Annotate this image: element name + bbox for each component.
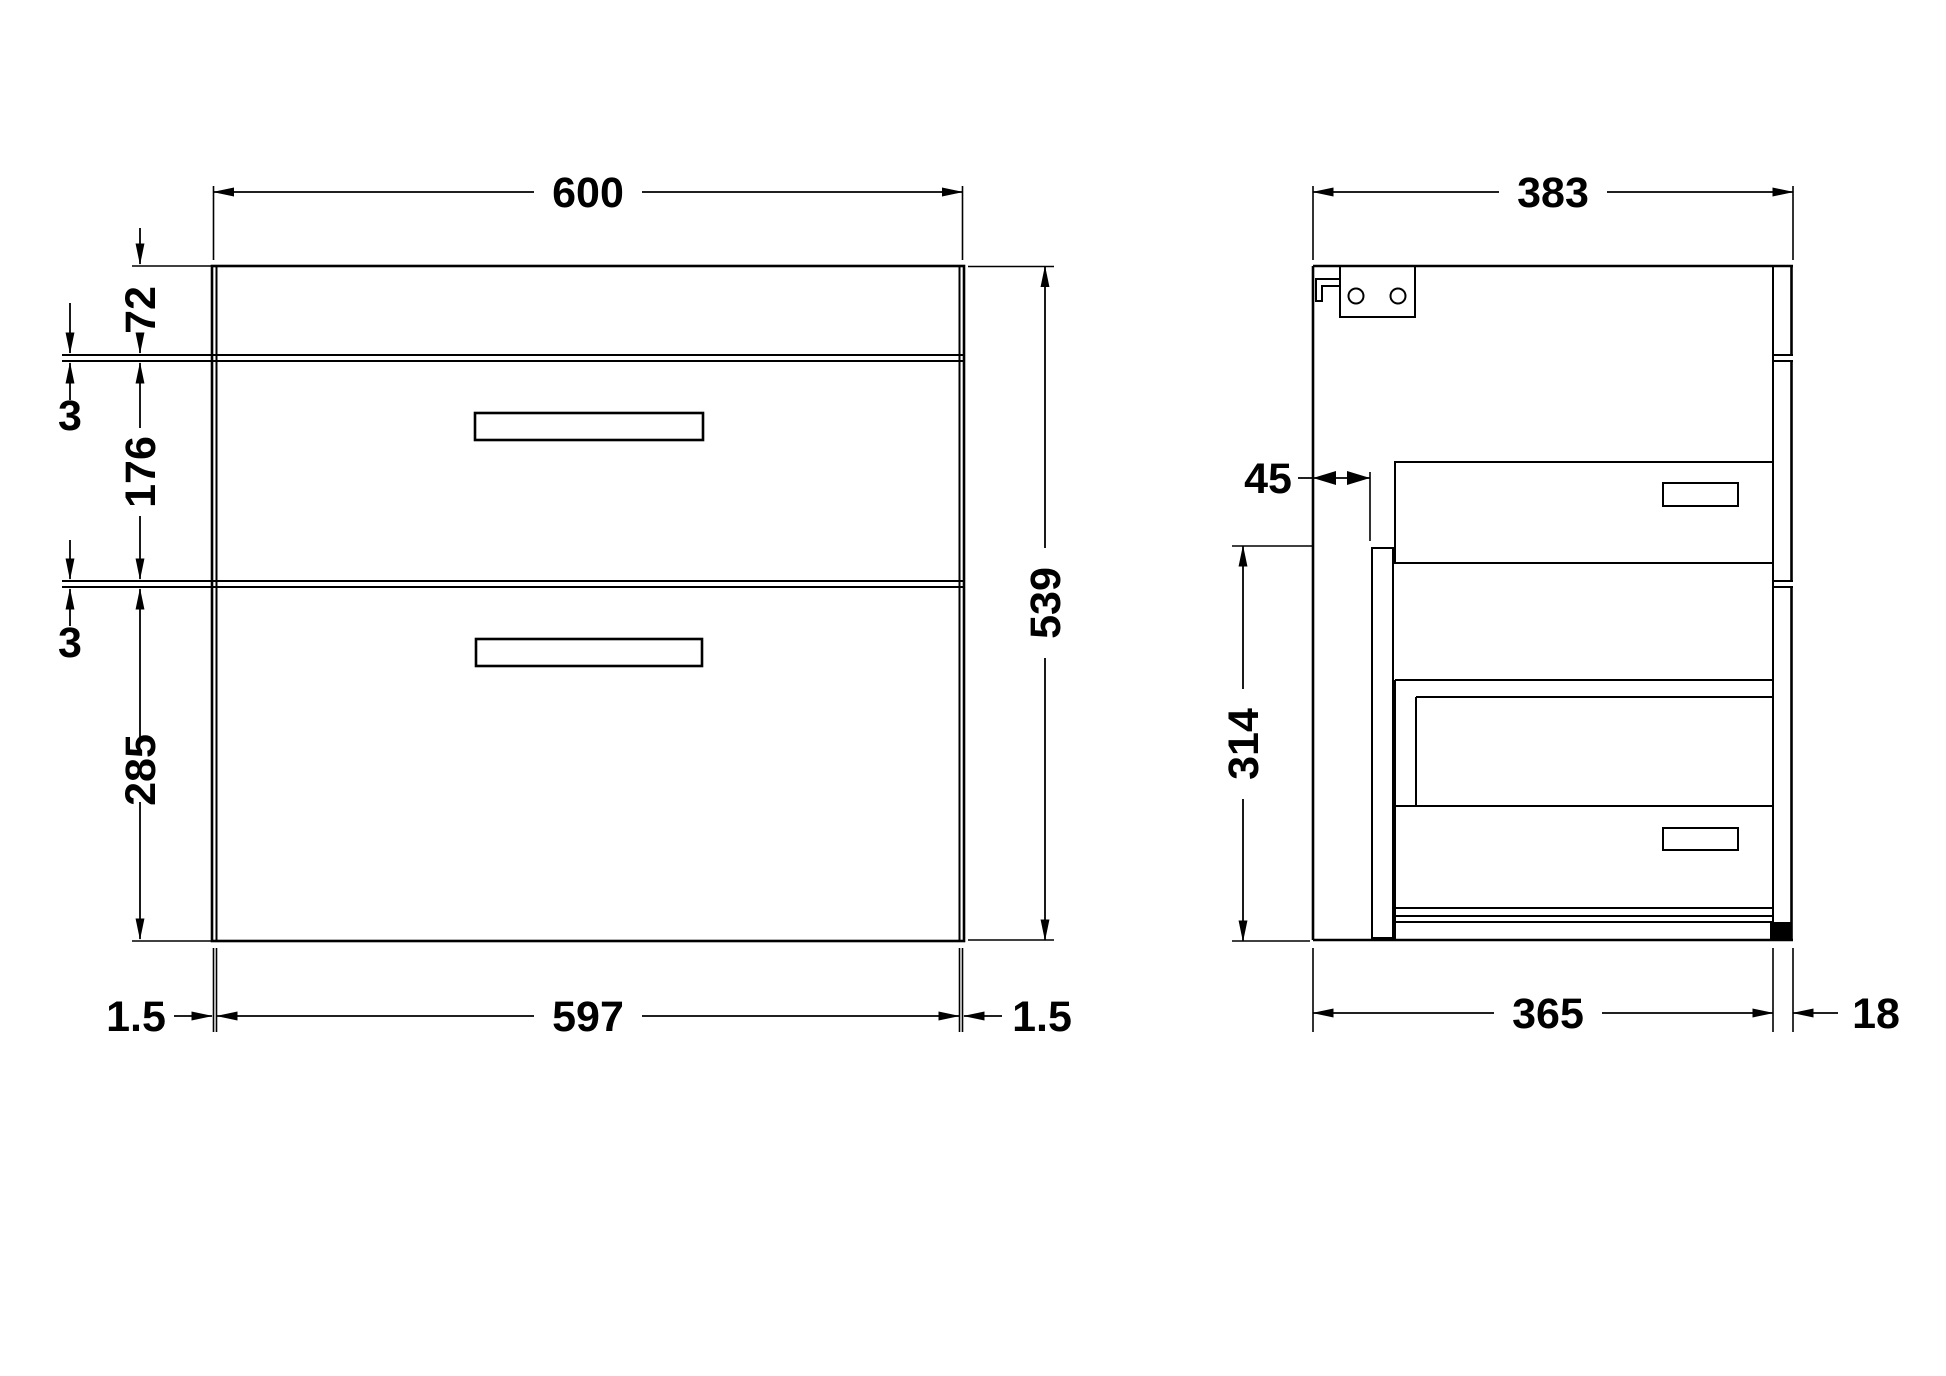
dim-front-gap-chain: 3 3: [58, 303, 82, 667]
drawer2-handle: [476, 639, 702, 666]
side-drawer-box-2: [1395, 680, 1791, 940]
dim-18-label: 18: [1852, 990, 1900, 1038]
dim-side-internal-height: 314: [1220, 546, 1312, 941]
front-cabinet-outline: [212, 266, 964, 941]
dim-365-label: 365: [1512, 990, 1584, 1038]
technical-drawing-canvas: 600 539 72 176 285: [0, 0, 1946, 1376]
dim-gap2-label: 3: [58, 619, 82, 667]
dim-front-left-chain: 72 176 285: [117, 228, 212, 941]
hanger-hook: [1316, 279, 1340, 301]
dim-72-label: 72: [117, 286, 165, 334]
wall-bracket: [1316, 266, 1415, 317]
dim-side-bottom: 365 18: [1313, 948, 1900, 1038]
dim-front-height: 539: [968, 267, 1070, 941]
drawer1-handle: [475, 413, 703, 440]
side-drawer-box-1: [1395, 462, 1773, 563]
dim-383-label: 383: [1517, 169, 1589, 217]
dim-314-label: 314: [1220, 708, 1268, 780]
side-drawer1-handle: [1663, 483, 1738, 506]
dim-600-label: 600: [552, 169, 624, 217]
side-back-panel: [1372, 548, 1393, 938]
dim-right-1-5-label: 1.5: [1012, 993, 1072, 1041]
dim-285-label: 285: [117, 734, 165, 806]
vanity-drawing-svg: 600 539 72 176 285: [0, 0, 1946, 1376]
side-front-panel-strip: [1773, 266, 1793, 940]
dim-539-label: 539: [1022, 567, 1070, 639]
dim-front-width: 600: [214, 169, 963, 260]
dim-side-depth: 383: [1313, 169, 1793, 260]
dim-176-label: 176: [117, 436, 165, 508]
dim-front-bottom: 1.5 597 1.5: [106, 948, 1072, 1041]
dim-left-1-5-label: 1.5: [106, 993, 166, 1041]
dim-side-back-gap: 45: [1240, 455, 1370, 541]
side-front-bottom-block: [1770, 922, 1791, 940]
dim-45-label: 45: [1244, 455, 1292, 503]
dim-597-label: 597: [552, 993, 624, 1041]
bracket-screw-hole-left: [1349, 289, 1364, 304]
side-drawer2-handle: [1663, 828, 1738, 850]
dim-gap1-label: 3: [58, 392, 82, 440]
side-view: 383 45 314 365: [1220, 169, 1900, 1038]
bracket-screw-hole-right: [1391, 289, 1406, 304]
front-view: 600 539 72 176 285: [58, 169, 1072, 1041]
